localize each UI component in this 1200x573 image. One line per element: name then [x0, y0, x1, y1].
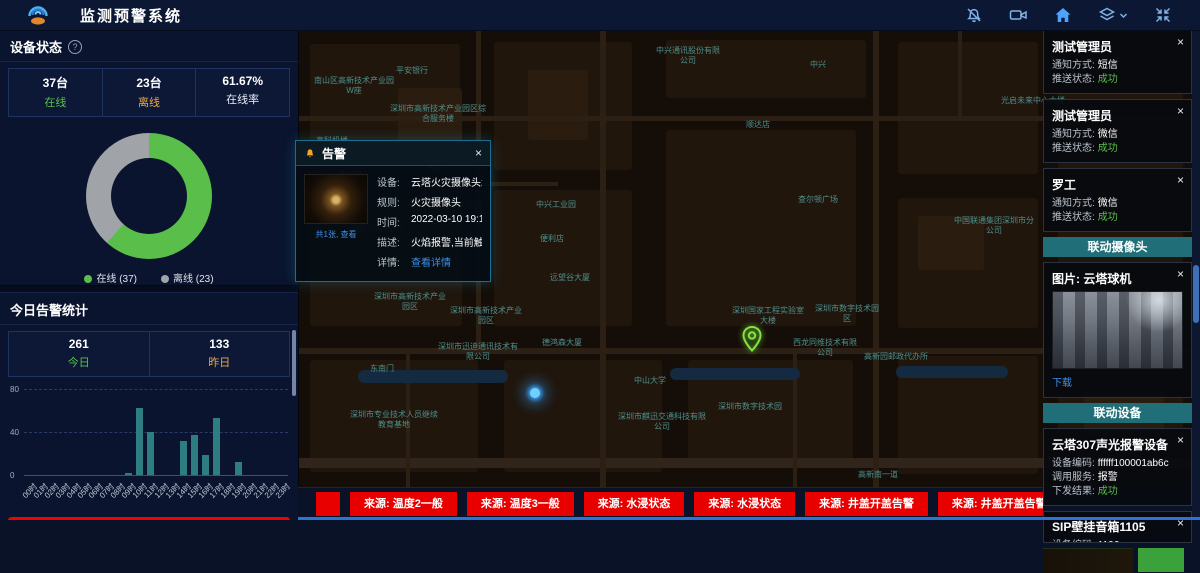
stat-online-rate: 61.67% 在线率	[195, 69, 289, 116]
alarm-popup-header: 告警 ×	[296, 141, 490, 166]
yesterday-label: 昨日	[150, 354, 290, 370]
y-tick-40: 40	[10, 428, 19, 437]
alert-chip[interactable]: 来源: 温度3一般	[467, 492, 574, 516]
map-block	[666, 130, 856, 326]
card-row-value: 成功	[1098, 73, 1118, 87]
card-row-label: 通知方式:	[1052, 128, 1095, 142]
bar-15时	[191, 435, 198, 475]
device-donut-chart	[0, 123, 298, 269]
help-icon[interactable]: ?	[68, 40, 82, 54]
stat-today: 261 今日	[9, 332, 149, 376]
alarm-bell-icon	[304, 147, 316, 159]
popup-field-value: 2022-03-10 19:13:07	[411, 214, 482, 229]
legend-offline[interactable]: 离线 (23)	[161, 270, 214, 285]
map-label: 东南门	[370, 364, 394, 374]
popup-row: 详情:查看详情	[377, 254, 482, 269]
alert-chips: 来源: 温度2一般来源: 温度3一般来源: 水浸状态来源: 水浸状态来源: 井盖…	[316, 492, 1043, 516]
map-label: 深圳市高新技术产业园区	[374, 292, 446, 312]
card-row-label: 推送状态:	[1052, 211, 1095, 225]
gridline-80	[24, 389, 288, 390]
camera-photo-card: 图片: 云塔球机 × 下载	[1043, 262, 1192, 398]
close-icon[interactable]: ×	[1177, 105, 1184, 117]
card-title: 罗工	[1052, 176, 1171, 193]
card-row-value: 报警	[1098, 471, 1118, 485]
alarm-snapshot-image[interactable]	[304, 174, 368, 224]
online-count: 37台	[9, 74, 102, 91]
map-label: 深圳国家工程实验室大楼	[730, 306, 806, 326]
card-row-value: 成功	[1098, 485, 1118, 499]
notify-card: 测试管理员×通知方式:短信推送状态:成功	[1043, 30, 1192, 94]
chevron-down-icon	[1119, 11, 1128, 20]
card-row: 通知方式:短信	[1052, 59, 1183, 73]
map-label: 平安银行	[396, 66, 428, 76]
camera-thumbnail-dark[interactable]	[1043, 548, 1133, 573]
device-donut-hole	[111, 158, 187, 234]
video-camera-icon[interactable]	[1009, 6, 1028, 24]
x-axis-line	[24, 475, 288, 476]
popup-row: 时间:2022-03-10 19:13:07	[377, 214, 482, 229]
popup-row: 规则:火灾摄像头	[377, 194, 482, 209]
alarm-pin-marker[interactable]	[742, 326, 762, 352]
sip-card-slot: SIP壁挂音箱1105×设备编码:1106	[1043, 511, 1192, 543]
device-status-stats: 37台 在线 23台 离线 61.67% 在线率	[8, 68, 290, 117]
card-row: 通知方式:微信	[1052, 197, 1183, 211]
device-glow-marker[interactable]	[530, 388, 540, 398]
bar-10时	[136, 408, 143, 475]
legend-online-dot	[84, 275, 92, 283]
map-label: 深圳市数字技术园区	[814, 304, 880, 324]
popup-field-label: 设备:	[377, 174, 411, 189]
offline-label: 离线	[103, 94, 196, 110]
notify-card: 罗工×通知方式:微信推送状态:成功	[1043, 168, 1192, 232]
map-road	[958, 30, 962, 116]
card-row-value: 短信	[1098, 59, 1118, 73]
online-label: 在线	[9, 94, 102, 110]
card-row-label: 下发结果:	[1052, 485, 1095, 499]
alert-chip[interactable]: 来源: 井盖开盖告警	[938, 492, 1043, 516]
map-water-strip	[670, 368, 800, 380]
bar-11时	[147, 432, 154, 475]
alert-chip[interactable]: 来源: 井盖开盖告警	[805, 492, 928, 516]
map-label: 深圳市迅迪通讯技术有限公司	[436, 342, 520, 362]
map-label: 西龙同维技术有限公司	[790, 338, 860, 358]
map-label: 查尔顿广场	[798, 195, 838, 205]
popup-field-label: 详情:	[377, 254, 411, 269]
map-label: 深圳市高新技术产业园区综合服务楼	[390, 104, 486, 124]
app-logo-icon	[26, 3, 50, 27]
card-row-value: 微信	[1098, 197, 1118, 211]
online-rate-label: 在线率	[196, 91, 289, 107]
alarm-popup: 告警 × 共1张, 查看 设备:云塔火灾摄像头202规则:火灾摄像头时间:202…	[295, 140, 491, 282]
hour-bar-axis: 00时01时02时03时04时05时06时07时08时09时10时11时12时1…	[24, 479, 288, 509]
card-row: 设备编码:ffffff100001ab6c	[1052, 457, 1183, 471]
today-count: 261	[9, 337, 149, 351]
card-row: 推送状态:成功	[1052, 142, 1183, 156]
device-donut-ring	[86, 133, 212, 259]
legend-online-label: 在线 (37)	[96, 274, 137, 285]
map-label: 德鸿森大厦	[542, 338, 582, 348]
right-scrollbar-thumb[interactable]	[1193, 265, 1199, 323]
alert-chip[interactable]: 来源: 水浸状态	[584, 492, 685, 516]
notify-card: 测试管理员×通知方式:微信推送状态:成功	[1043, 99, 1192, 163]
today-alarms-stats: 261 今日 133 昨日	[8, 331, 290, 377]
popup-field-value: 云塔火灾摄像头202	[411, 174, 482, 189]
map-label: 深圳市专业技术人员继续教育基地	[348, 410, 440, 430]
section-divider	[0, 285, 298, 293]
card-row-value: 1106	[1098, 539, 1120, 543]
left-stats-panel: 设备状态 ? 37台 在线 23台 离线 61.67% 在线率 在线 (37) …	[0, 30, 299, 520]
map-building	[528, 70, 588, 140]
notification-off-icon[interactable]	[965, 6, 983, 24]
map-label: 南山区高新技术产业园W座	[312, 76, 396, 96]
camera-thumbnail-green[interactable]	[1138, 548, 1184, 572]
linked-device-card: 云塔307声光报警设备×设备编码:ffffff100001ab6c调用服务:报警…	[1043, 428, 1192, 506]
device-status-section-header: 设备状态 ?	[0, 30, 298, 62]
close-icon[interactable]: ×	[1177, 434, 1184, 446]
card-row-label: 通知方式:	[1052, 197, 1095, 211]
legend-offline-dot	[161, 275, 169, 283]
fullscreen-toggle-icon[interactable]	[1154, 6, 1172, 24]
map-road	[873, 30, 879, 487]
card-row: 设备编码:1106	[1052, 539, 1183, 543]
snapshot-view-link[interactable]: 共1张, 查看	[304, 229, 368, 240]
card-row-value: 微信	[1098, 128, 1118, 142]
bar-19时	[235, 462, 242, 475]
card-row-label: 设备编码:	[1052, 539, 1095, 543]
bottom-thumbnails	[1043, 548, 1192, 573]
card-title: 测试管理员	[1052, 38, 1171, 55]
y-tick-0: 0	[10, 471, 14, 480]
popup-rows: 设备:云塔火灾摄像头202规则:火灾摄像头时间:2022-03-10 19:13…	[377, 174, 482, 274]
card-title: 云塔307声光报警设备	[1052, 436, 1171, 453]
alert-chip[interactable]	[316, 492, 340, 516]
popup-detail-link[interactable]: 查看详情	[411, 254, 451, 269]
card-row: 推送状态:成功	[1052, 73, 1183, 87]
legend-offline-label: 离线 (23)	[173, 274, 214, 285]
popup-field-value: 火焰报警,当前触发值为...	[411, 234, 482, 249]
offline-count: 23台	[103, 74, 196, 91]
map-block	[898, 42, 1038, 174]
camera-snapshot-image[interactable]	[1052, 291, 1183, 369]
alert-chip[interactable]: 来源: 温度2一般	[350, 492, 457, 516]
card-title: SIP壁挂音箱1105	[1052, 518, 1171, 535]
map-label: 深圳市高新技术产业园区	[450, 306, 522, 326]
device-status-title: 设备状态	[10, 37, 62, 56]
close-icon[interactable]: ×	[1177, 174, 1184, 186]
page-title: 监测预警系统	[80, 5, 182, 26]
card-row-label: 设备编码:	[1052, 457, 1095, 471]
device-card-slot: 云塔307声光报警设备×设备编码:ffffff100001ab6c调用服务:报警…	[1043, 428, 1192, 506]
map-label: 深圳市数字技术园	[718, 402, 782, 412]
card-title: 测试管理员	[1052, 107, 1171, 124]
alarm-popup-title: 告警	[322, 145, 469, 162]
popup-row: 描述:火焰报警,当前触发值为...	[377, 234, 482, 249]
y-tick-80: 80	[10, 385, 19, 394]
close-icon[interactable]: ×	[1177, 268, 1184, 280]
linked-devices-button[interactable]: 联动设备	[1043, 403, 1192, 423]
right-notification-panel: 测试管理员×通知方式:短信推送状态:成功测试管理员×通知方式:微信推送状态:成功…	[1043, 30, 1192, 520]
notify-cards: 测试管理员×通知方式:短信推送状态:成功测试管理员×通知方式:微信推送状态:成功…	[1043, 30, 1192, 232]
card-row-label: 通知方式:	[1052, 59, 1095, 73]
today-alarms-section-header: 今日告警统计	[0, 293, 298, 325]
card-row: 通知方式:微信	[1052, 128, 1183, 142]
map-label: 中兴	[810, 60, 826, 70]
stat-yesterday: 133 昨日	[149, 332, 290, 376]
download-link[interactable]: 下载	[1052, 378, 1072, 389]
alarm-popup-body: 共1张, 查看 设备:云塔火灾摄像头202规则:火灾摄像头时间:2022-03-…	[296, 166, 490, 282]
sip-speaker-card: SIP壁挂音箱1105×设备编码:1106	[1043, 511, 1192, 543]
alarm-snapshot-column: 共1张, 查看	[304, 174, 368, 274]
bar-14时	[180, 441, 187, 475]
map-label: 便利店	[540, 234, 564, 244]
popup-field-label: 时间:	[377, 214, 411, 229]
card-row-label: 调用服务:	[1052, 471, 1095, 485]
popup-field-label: 描述:	[377, 234, 411, 249]
gridline-40	[24, 432, 288, 433]
online-rate-value: 61.67%	[196, 74, 289, 88]
right-scrollbar-track[interactable]	[1192, 30, 1200, 520]
bar-16时	[202, 455, 209, 475]
photo-card-title: 图片: 云塔球机	[1052, 270, 1171, 287]
map-label: 中山大学	[634, 376, 666, 386]
card-row-value: 成功	[1098, 211, 1118, 225]
popup-field-value: 火灾摄像头	[411, 194, 461, 209]
donut-legend: 在线 (37) 离线 (23)	[0, 269, 298, 285]
stat-online: 37台 在线	[9, 69, 102, 116]
map-label: 中兴工业园	[536, 200, 576, 210]
map-label: 远望谷大厦	[550, 273, 590, 283]
hour-bar-plot	[24, 389, 288, 475]
home-icon[interactable]	[1054, 6, 1072, 24]
bar-17时	[213, 418, 220, 475]
close-icon[interactable]: ×	[1177, 36, 1184, 48]
hourly-alarm-bar-chart: 80 40 0 00时01时02时03时04时05时06时07时08时09时10…	[6, 383, 292, 511]
card-row-label: 推送状态:	[1052, 142, 1095, 156]
legend-online[interactable]: 在线 (37)	[84, 270, 137, 285]
map-label: 中兴通讯股份有限公司	[655, 46, 721, 66]
card-row: 推送状态:成功	[1052, 211, 1183, 225]
map-label: 深圳市麒迅交通科技有限公司	[616, 412, 708, 432]
card-row-value: ffffff100001ab6c	[1098, 457, 1169, 471]
map-road	[600, 30, 606, 487]
today-alarms-title: 今日告警统计	[10, 300, 88, 319]
alert-chip[interactable]: 来源: 水浸状态	[694, 492, 795, 516]
card-row: 调用服务:报警	[1052, 471, 1183, 485]
card-row: 下发结果:成功	[1052, 485, 1183, 499]
linked-cameras-button[interactable]: 联动摄像头	[1043, 237, 1192, 257]
bottom-alert-bar: 来源: 温度2一般来源: 温度3一般来源: 水浸状态来源: 水浸状态来源: 井盖…	[298, 487, 1043, 520]
map-water-strip	[896, 366, 1008, 378]
card-row-value: 成功	[1098, 142, 1118, 156]
close-icon[interactable]: ×	[475, 147, 482, 159]
layers-icon[interactable]	[1098, 6, 1128, 24]
map-label: 高新园邮政代办所	[864, 352, 928, 362]
map-label: 高新南一道	[858, 470, 898, 480]
top-header: 监测预警系统	[0, 0, 1200, 31]
today-label: 今日	[9, 354, 149, 370]
popup-row: 设备:云塔火灾摄像头202	[377, 174, 482, 189]
popup-field-label: 规则:	[377, 194, 411, 209]
stat-offline: 23台 离线	[102, 69, 196, 116]
card-row-label: 推送状态:	[1052, 73, 1095, 87]
left-panel-scrollbar-thumb[interactable]	[292, 330, 296, 396]
map-label: 中国联通集团深圳市分公司	[954, 216, 1034, 236]
yesterday-count: 133	[150, 337, 290, 351]
map-label: 顺达店	[746, 120, 770, 130]
